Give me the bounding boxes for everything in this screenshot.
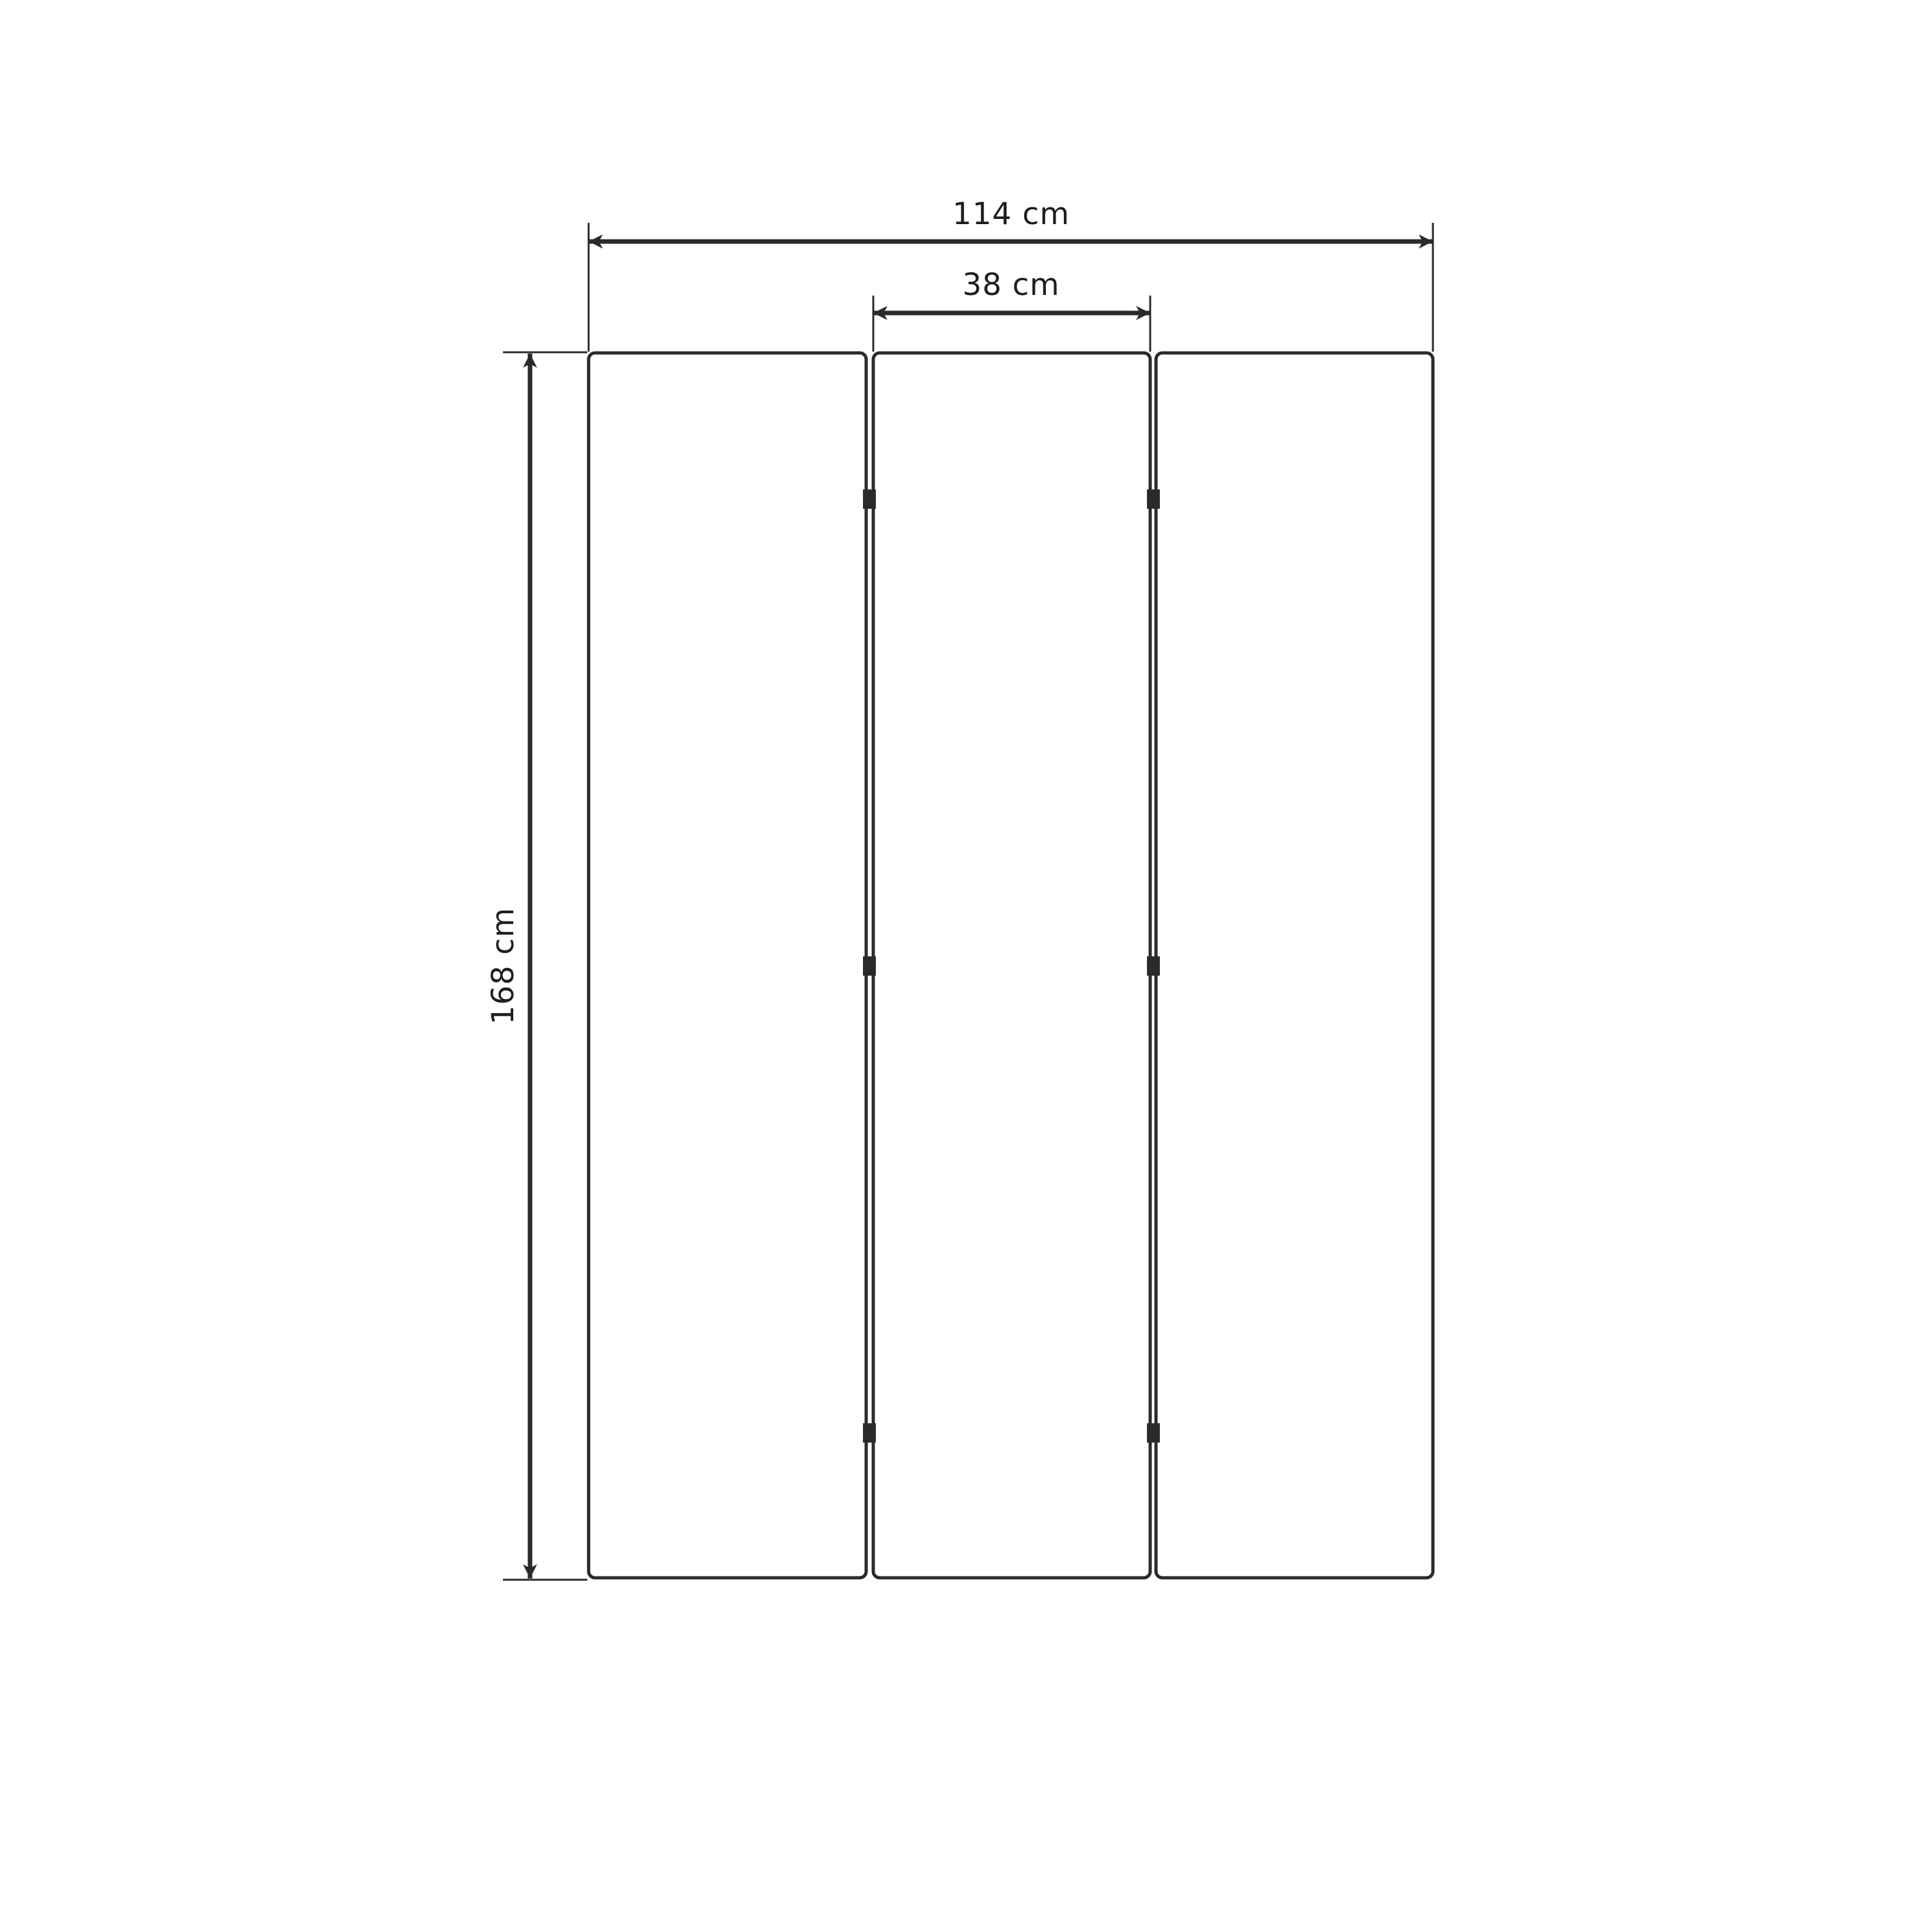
panel-center	[873, 353, 1150, 1578]
panel-right	[1156, 353, 1433, 1578]
hinge-mark	[863, 489, 876, 509]
height-label: 168 cm	[486, 907, 521, 1025]
hinge-mark	[1147, 1423, 1160, 1443]
hinge-mark	[863, 956, 876, 976]
three-panel-divider-diagram: 114 cm 38 cm 168 cm	[0, 0, 1932, 1932]
panel-width-label: 38 cm	[962, 267, 1059, 303]
dimension-panel-width: 38 cm	[873, 267, 1150, 352]
hinge-mark	[863, 1423, 876, 1443]
total-width-label: 114 cm	[952, 196, 1070, 232]
hinge-mark	[1147, 489, 1160, 509]
panel-group	[589, 353, 1433, 1578]
dimension-drawing-canvas: 114 cm 38 cm 168 cm	[0, 0, 1932, 1932]
hinge-mark	[1147, 956, 1160, 976]
dimension-height: 168 cm	[486, 352, 587, 1580]
panel-left	[589, 353, 866, 1578]
